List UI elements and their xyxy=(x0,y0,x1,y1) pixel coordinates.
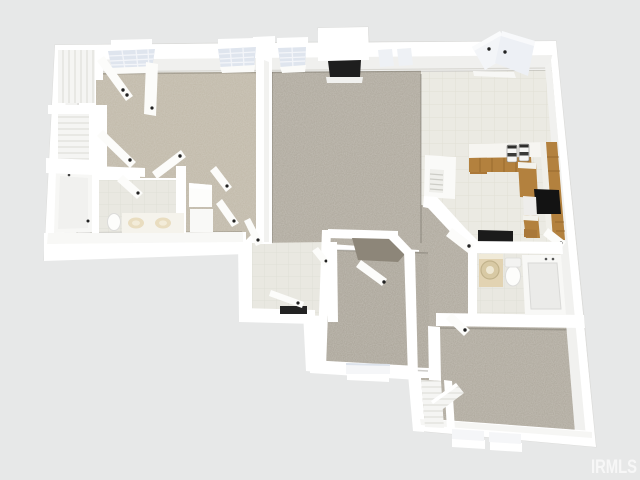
svg-text:IRMLS: IRMLS xyxy=(591,457,637,478)
